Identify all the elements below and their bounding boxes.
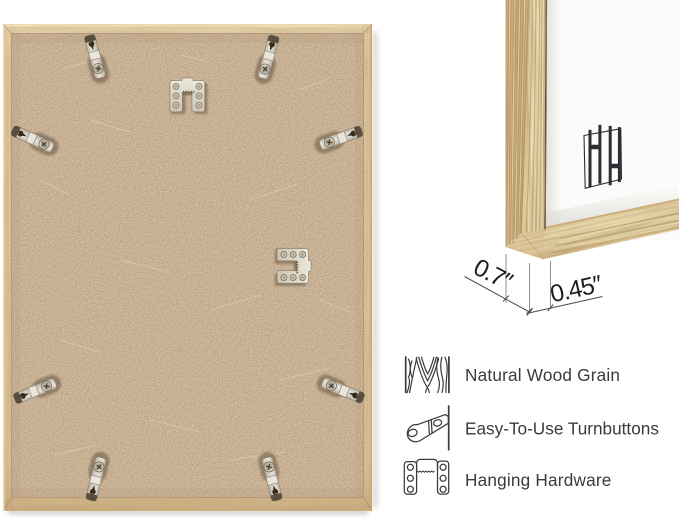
- svg-text:Hanging Hardware: Hanging Hardware: [465, 470, 612, 490]
- svg-text:Natural Wood Grain: Natural Wood Grain: [465, 365, 620, 385]
- svg-text:Easy-To-Use Turnbuttons: Easy-To-Use Turnbuttons: [465, 419, 659, 439]
